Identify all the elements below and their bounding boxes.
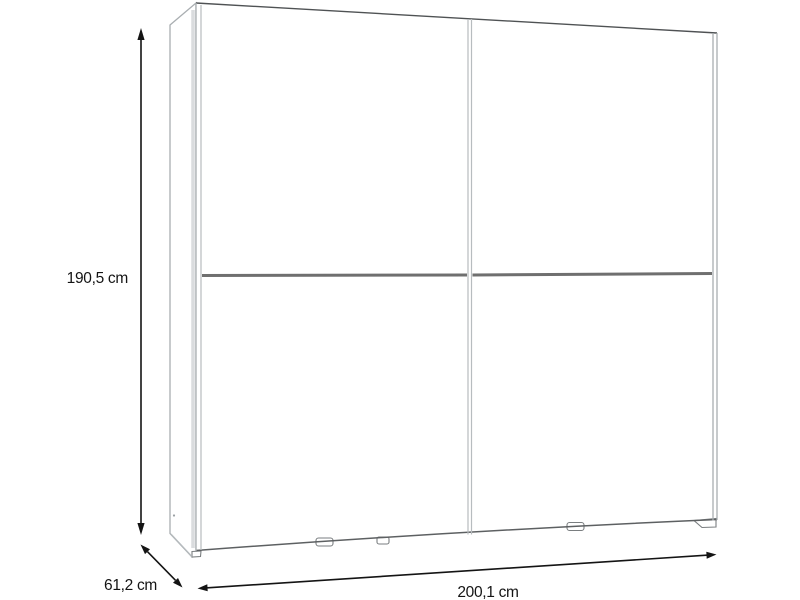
wardrobe <box>170 3 717 557</box>
depth-dimension: 61,2 cm <box>104 545 183 595</box>
width-arrow-head-left <box>198 584 208 591</box>
width-arrow-head-right <box>706 552 716 559</box>
side-panel-fitting-dot <box>173 514 175 516</box>
height-arrow-head-top <box>137 28 144 40</box>
depth-dimension-label: 61,2 cm <box>104 577 157 594</box>
depth-arrow-line <box>148 552 176 581</box>
wardrobe-dimension-drawing: 190,5 cm 61,2 cm 200,1 cm <box>0 0 800 600</box>
height-dimension-label: 190,5 cm <box>67 270 128 287</box>
right-door-seam <box>473 274 713 276</box>
wardrobe-corner-foot-left <box>192 551 201 557</box>
height-dimension: 190,5 cm <box>67 28 145 535</box>
width-dimension: 200,1 cm <box>198 552 717 600</box>
left-door-seam <box>202 275 467 276</box>
height-arrow-head-bottom <box>137 523 144 535</box>
product-dimension-diagram: 190,5 cm 61,2 cm 200,1 cm <box>0 0 800 600</box>
width-arrow-line <box>208 555 707 588</box>
width-dimension-label: 200,1 cm <box>457 584 518 600</box>
